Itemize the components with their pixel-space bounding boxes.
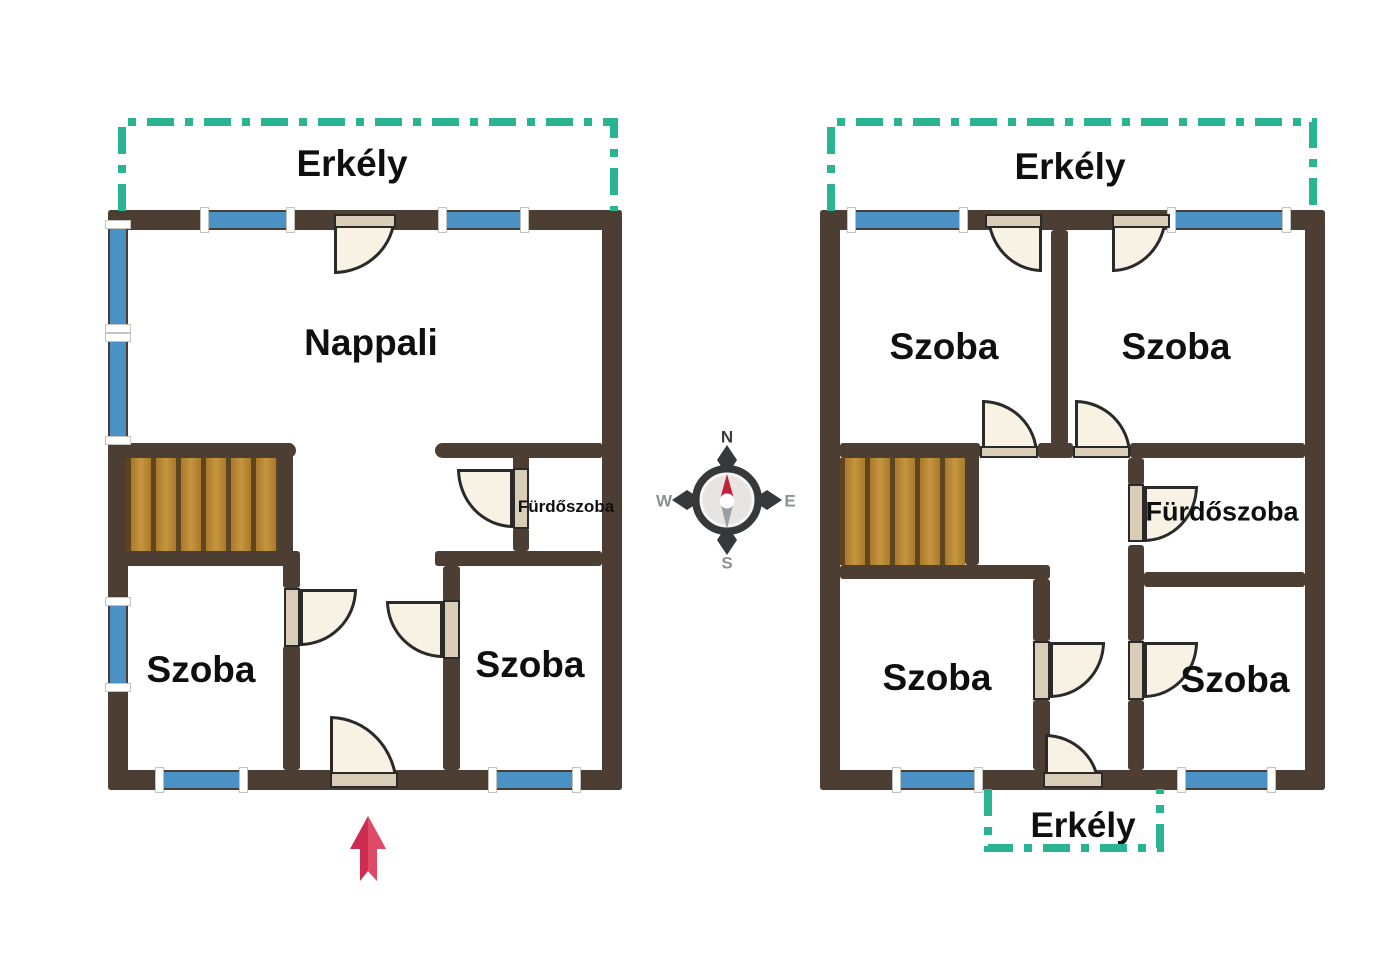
interior-wall xyxy=(1033,579,1050,641)
interior-wall-bathroom xyxy=(1144,572,1305,587)
door-leaf xyxy=(443,600,460,659)
balcony-label: Erkély xyxy=(296,143,407,185)
interior-wall xyxy=(443,566,460,602)
door-swing-bathroom xyxy=(457,469,513,528)
bathroom-label: Fürdőszoba xyxy=(518,497,614,517)
balcony-label: Erkély xyxy=(1014,146,1125,188)
door-swing-room-right xyxy=(386,601,443,658)
window xyxy=(855,212,960,228)
interior-wall xyxy=(443,657,460,770)
interior-wall-stairs-bottom xyxy=(126,551,296,566)
compass-face xyxy=(701,474,753,526)
interior-wall xyxy=(1128,700,1144,770)
door-leaf xyxy=(985,214,1042,228)
living-room-label: Nappali xyxy=(304,322,438,364)
compass-label-s: S xyxy=(721,554,732,573)
interior-wall xyxy=(1128,458,1144,485)
door-leaf xyxy=(1043,772,1103,788)
door-leaf xyxy=(334,214,396,228)
bathroom-label: Fürdőszoba xyxy=(1146,497,1299,528)
entrance-arrow xyxy=(350,816,386,881)
compass-needle-hub xyxy=(720,494,735,509)
compass-point-west xyxy=(672,490,702,510)
interior-wall-mid xyxy=(840,443,980,458)
compass-label-e: E xyxy=(784,492,795,511)
window xyxy=(1185,772,1268,788)
staircase xyxy=(840,458,965,565)
door-leaf xyxy=(1112,214,1170,228)
interior-wall-bathroom xyxy=(513,443,529,470)
compass-needle-north xyxy=(720,474,735,501)
interior-wall xyxy=(283,551,300,588)
window xyxy=(110,341,126,437)
window xyxy=(446,212,521,228)
interior-wall xyxy=(1128,545,1144,641)
door-leaf xyxy=(330,772,398,788)
entrance-arrow-highlight xyxy=(368,816,386,881)
compass-point-north xyxy=(717,445,737,475)
window xyxy=(163,772,240,788)
interior-wall xyxy=(435,551,602,566)
door-leaf xyxy=(980,446,1038,458)
room-label: Szoba xyxy=(476,644,585,686)
door-leaf xyxy=(1128,641,1144,700)
window xyxy=(1175,212,1283,228)
window xyxy=(110,228,126,325)
room-label: Szoba xyxy=(890,326,999,368)
compass-label-w: W xyxy=(656,492,673,511)
room-label: Szoba xyxy=(1181,659,1290,701)
window xyxy=(208,212,287,228)
compass-point-east xyxy=(752,490,782,510)
door-leaf xyxy=(284,588,300,647)
interior-wall-mid xyxy=(1130,443,1305,458)
interior-wall-stairs-side xyxy=(965,443,979,565)
compass-needle-south xyxy=(720,499,735,529)
exterior-wall-left xyxy=(820,210,840,790)
balcony-label: Erkély xyxy=(1030,806,1135,846)
door-swing-room-left xyxy=(300,589,357,646)
interior-wall-bathroom xyxy=(513,528,529,551)
staircase xyxy=(126,458,278,551)
room-label: Szoba xyxy=(883,657,992,699)
interior-wall xyxy=(840,565,1050,579)
window xyxy=(900,772,975,788)
door-swing-room-bottom-left xyxy=(1050,642,1105,698)
window xyxy=(496,772,573,788)
room-label: Szoba xyxy=(147,649,256,691)
compass-rose: N W E S xyxy=(656,428,796,573)
interior-wall-rooms-divider xyxy=(1051,230,1068,445)
interior-wall-mid xyxy=(1038,443,1073,458)
room-label: Szoba xyxy=(1122,326,1231,368)
interior-wall-stairs-top xyxy=(126,443,296,458)
interior-wall xyxy=(283,646,300,770)
exterior-wall-right xyxy=(1305,210,1325,790)
compass-label-n: N xyxy=(721,428,733,447)
interior-wall-stairs-side xyxy=(278,443,293,566)
door-leaf xyxy=(1033,641,1050,700)
window xyxy=(110,605,126,684)
door-leaf xyxy=(1128,484,1144,542)
compass-point-south xyxy=(717,525,737,555)
floorplan-canvas: Erkély Nappali Fürdőszoba Szoba Szoba Er… xyxy=(0,0,1400,960)
door-leaf xyxy=(1073,446,1130,458)
compass-ring xyxy=(696,469,758,531)
entrance-arrow-body xyxy=(350,816,386,881)
